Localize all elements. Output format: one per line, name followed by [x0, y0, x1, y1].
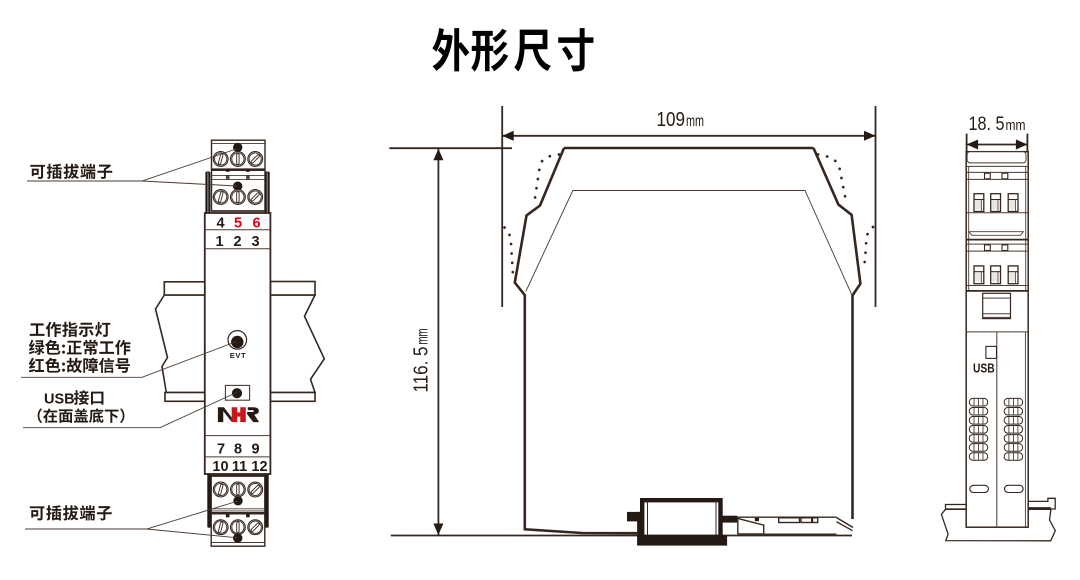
svg-text:11: 11 [232, 459, 247, 475]
svg-text:12: 12 [251, 459, 267, 475]
svg-text:2: 2 [233, 234, 241, 250]
svg-text:18. 5: 18. 5 [969, 114, 1005, 135]
svg-text:6: 6 [252, 216, 260, 232]
svg-text:USB: USB [973, 362, 995, 376]
svg-text:1: 1 [215, 234, 223, 250]
svg-text:USB: USB [44, 392, 75, 408]
svg-text:EVT: EVT [230, 351, 246, 360]
svg-text:10: 10 [212, 459, 228, 475]
svg-text:9: 9 [251, 441, 259, 457]
svg-text:mm: mm [686, 113, 704, 130]
svg-text:4: 4 [216, 216, 224, 232]
svg-text:116. 5: 116. 5 [410, 347, 433, 393]
svg-text:mm: mm [1006, 117, 1026, 134]
svg-text:7: 7 [217, 441, 225, 457]
svg-text:8: 8 [234, 441, 242, 457]
svg-text:mm: mm [415, 329, 432, 345]
svg-text:109: 109 [657, 108, 686, 131]
svg-text:5: 5 [234, 216, 242, 232]
svg-text:3: 3 [251, 234, 259, 250]
